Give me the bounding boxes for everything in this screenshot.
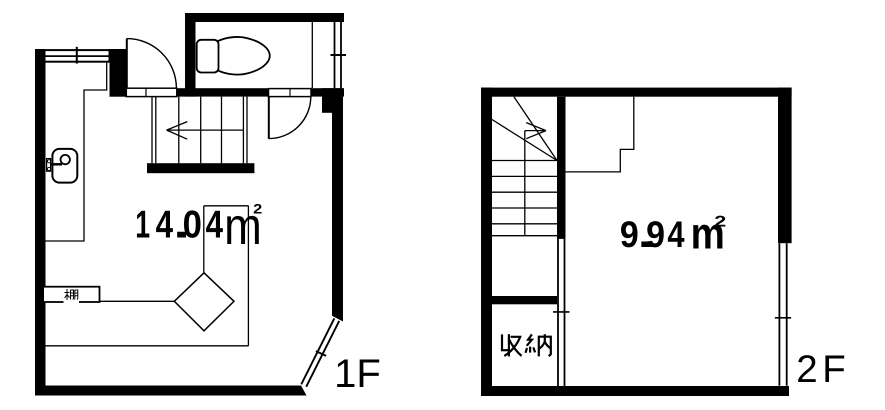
svg-text:4: 4	[667, 215, 685, 256]
svg-text:9: 9	[646, 215, 665, 256]
svg-text:1F: 1F	[334, 352, 381, 396]
svg-text:2: 2	[253, 202, 263, 217]
svg-text:2: 2	[714, 213, 726, 230]
svg-text:1: 1	[135, 202, 150, 246]
svg-text:4: 4	[156, 202, 174, 246]
svg-text:2F: 2F	[796, 348, 850, 391]
svg-text:4: 4	[206, 202, 224, 246]
svg-text:0: 0	[183, 202, 202, 246]
